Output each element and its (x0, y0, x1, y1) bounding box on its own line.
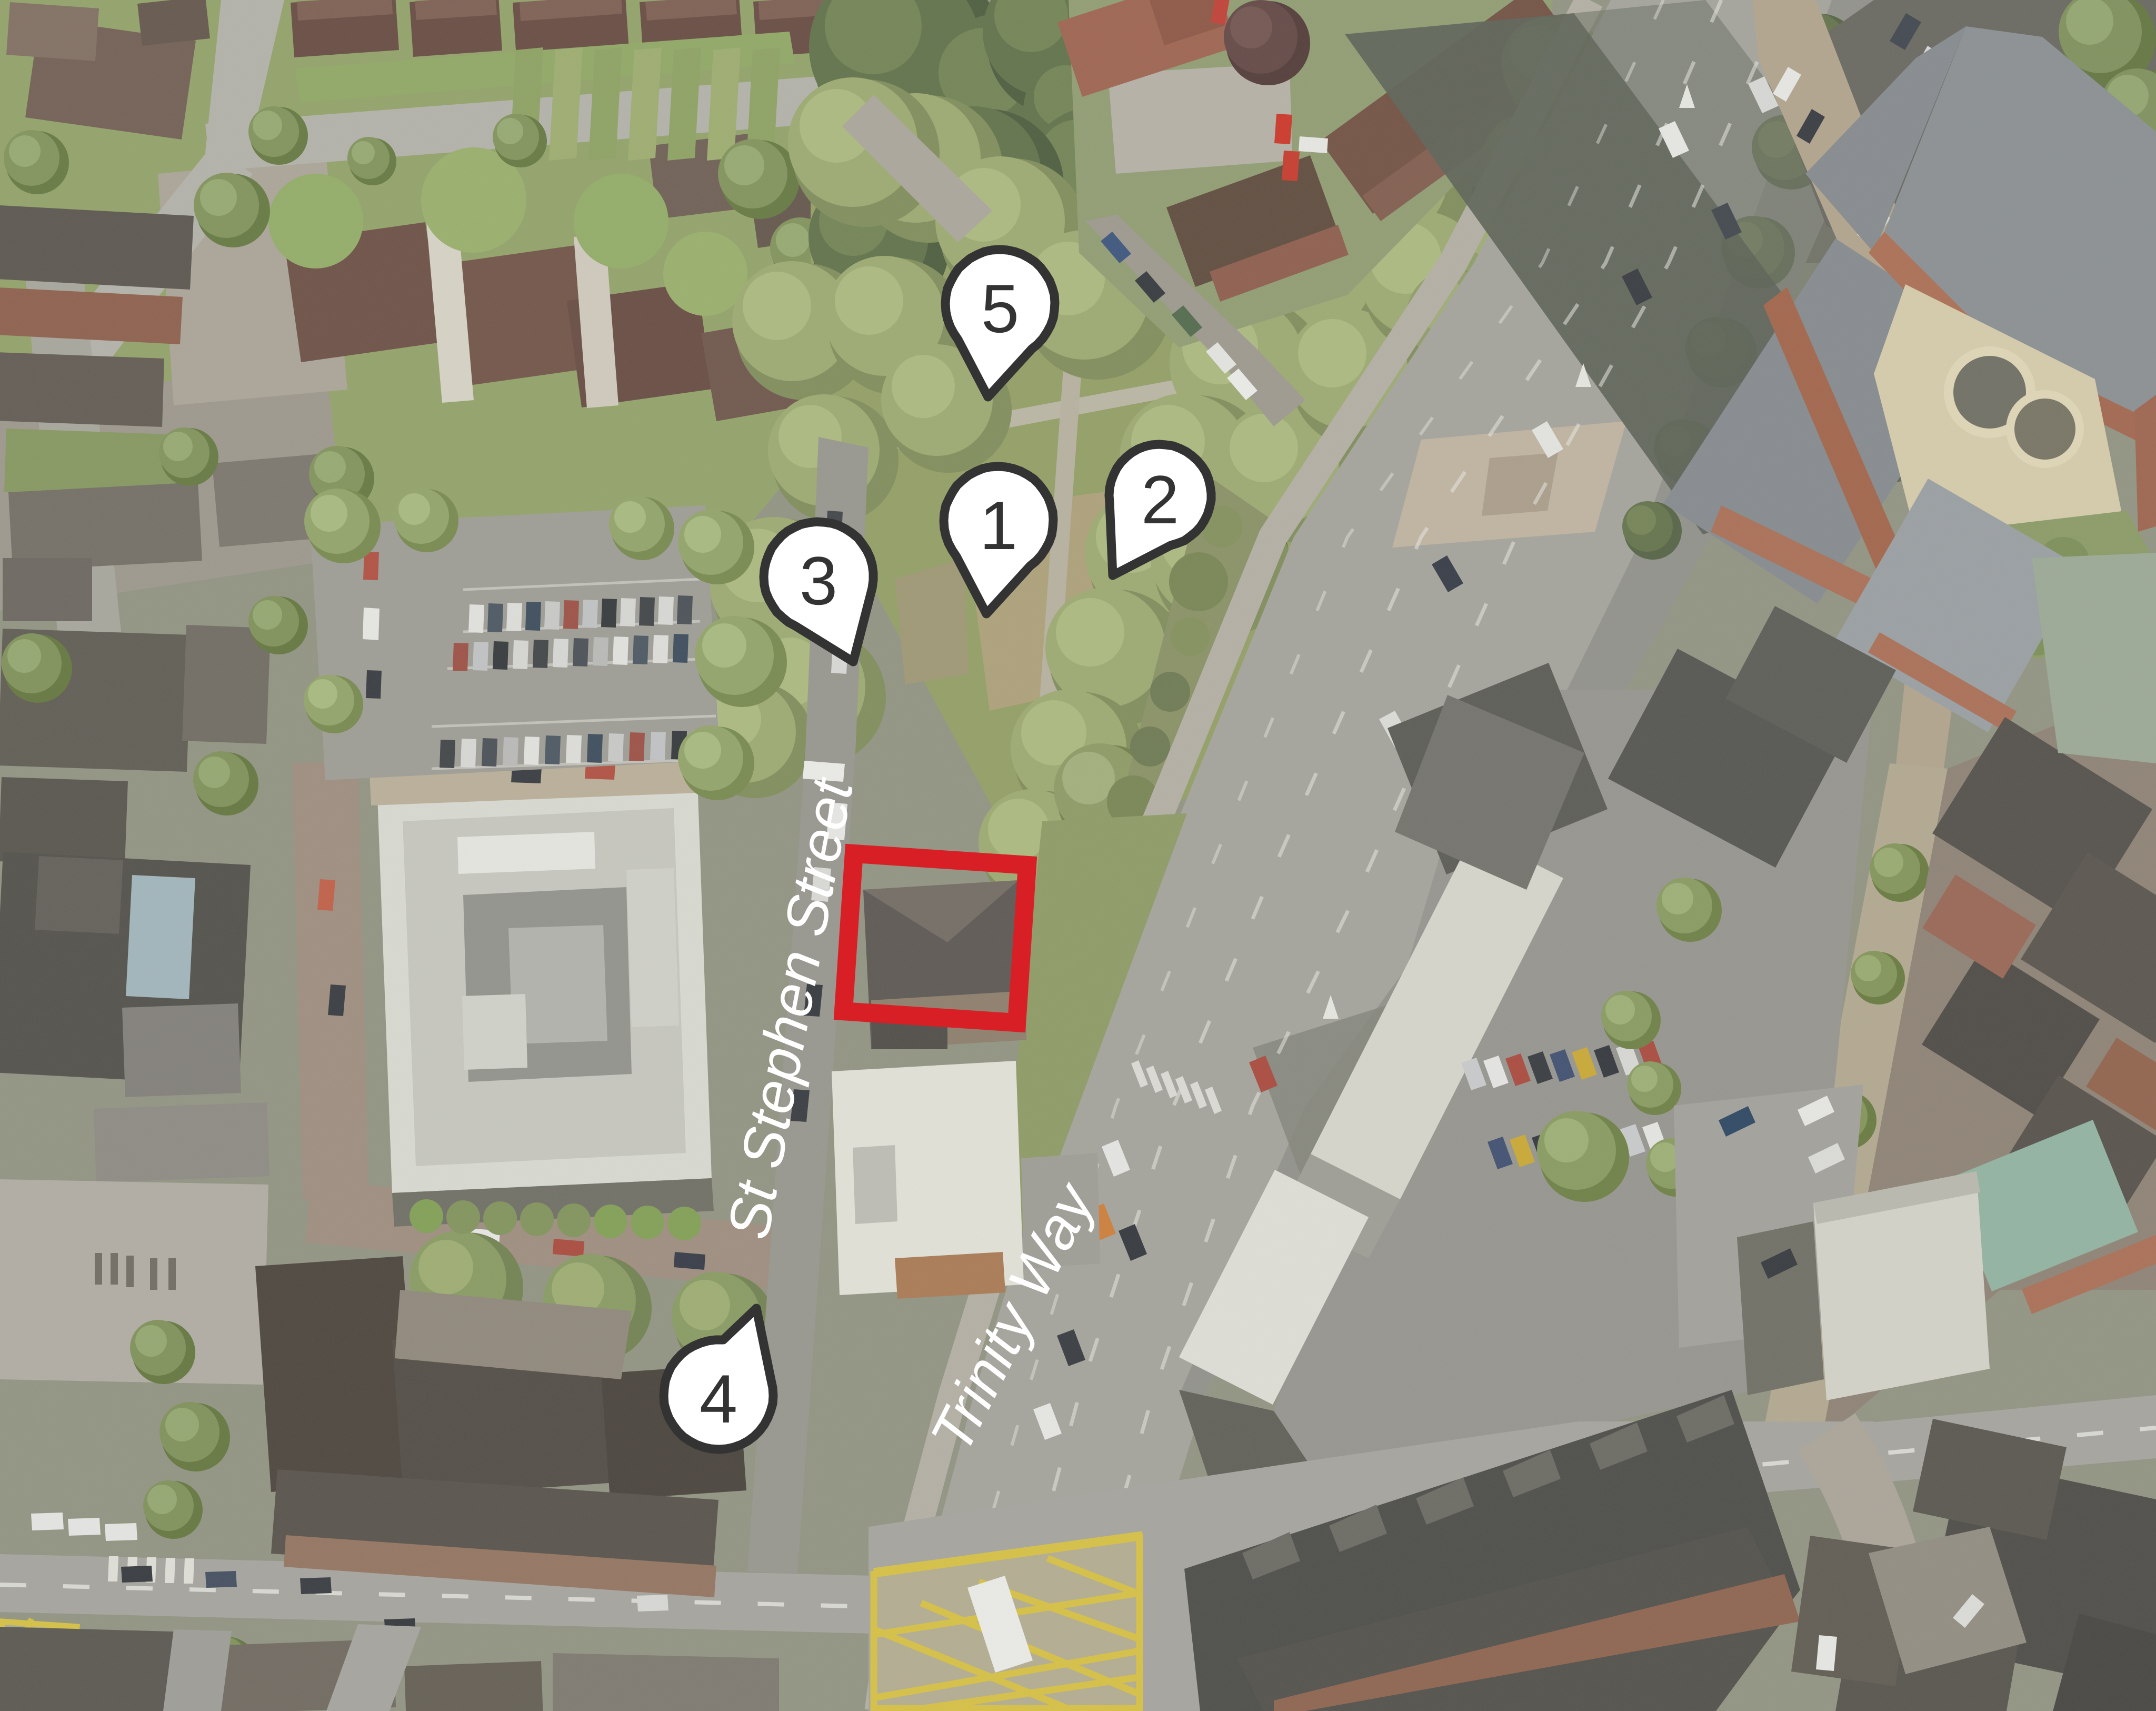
svg-text:2: 2 (1141, 461, 1179, 538)
svg-text:5: 5 (981, 270, 1019, 347)
svg-text:4: 4 (700, 1360, 737, 1437)
svg-text:3: 3 (800, 542, 837, 619)
svg-text:1: 1 (980, 487, 1017, 564)
